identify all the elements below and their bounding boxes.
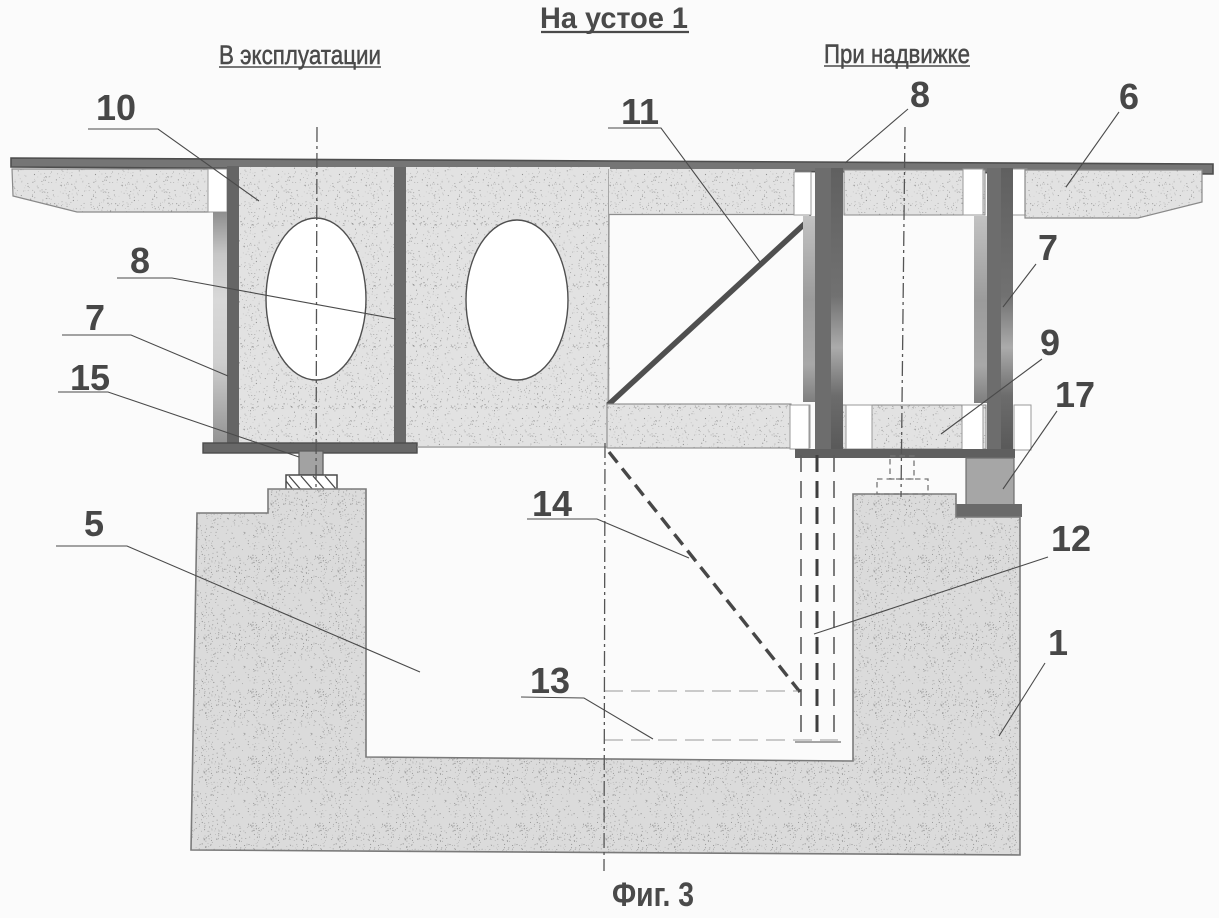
svg-text:14: 14 bbox=[532, 483, 572, 524]
svg-text:6: 6 bbox=[1119, 76, 1139, 117]
svg-text:Фиг. 3: Фиг. 3 bbox=[612, 876, 694, 914]
svg-text:1: 1 bbox=[1048, 622, 1068, 663]
svg-text:7: 7 bbox=[1038, 227, 1058, 268]
svg-text:11: 11 bbox=[621, 91, 659, 132]
svg-text:В эксплуатации: В эксплуатации bbox=[219, 40, 381, 70]
svg-text:На устое 1: На устое 1 bbox=[540, 2, 688, 35]
svg-text:10: 10 bbox=[96, 87, 136, 128]
svg-text:8: 8 bbox=[130, 240, 150, 281]
svg-text:8: 8 bbox=[910, 74, 930, 115]
svg-text:17: 17 bbox=[1055, 374, 1095, 415]
svg-text:9: 9 bbox=[1040, 322, 1060, 363]
svg-text:13: 13 bbox=[530, 660, 570, 701]
svg-text:7: 7 bbox=[85, 297, 105, 338]
svg-text:5: 5 bbox=[84, 503, 104, 544]
svg-text:При надвижке: При надвижке bbox=[824, 39, 970, 69]
svg-text:12: 12 bbox=[1051, 518, 1091, 559]
